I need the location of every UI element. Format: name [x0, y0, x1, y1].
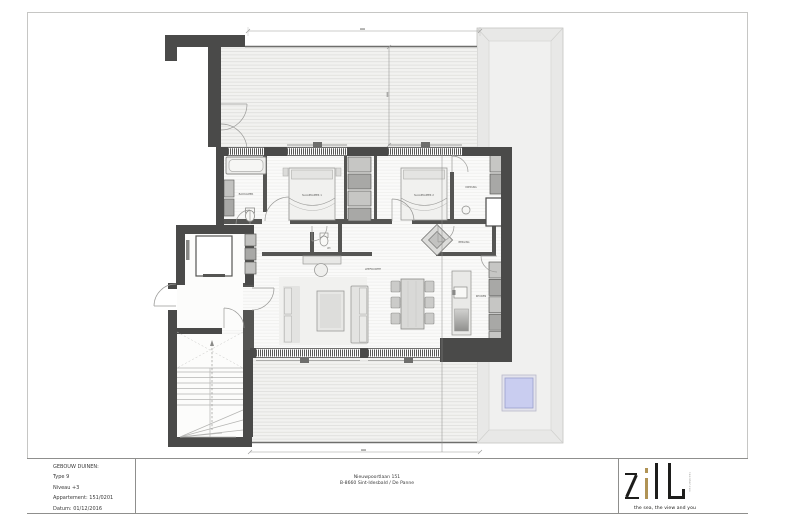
- logo-letter-i: [645, 478, 648, 499]
- wc-label: WC: [327, 247, 331, 250]
- skylight: [502, 375, 536, 411]
- title-block: GEBOUW DUINEN: Type 9 Niveau +3 Appartem…: [27, 458, 748, 514]
- upper-terrace: [221, 46, 477, 147]
- title-block-logo: residences the sea, the view and you: [618, 459, 748, 513]
- bedroom-1: SLAAPKAMER 1: [283, 168, 341, 220]
- bathroom-label: BADKAMER: [239, 192, 254, 196]
- round-table: [315, 264, 328, 277]
- circulation-core: [168, 225, 256, 447]
- bedroom-2: SLAAPKAMER 2: [401, 168, 447, 220]
- address-city: B-8660 Sint-Idesbald / De Panne: [136, 481, 618, 487]
- bedroom2-label: SLAAPKAMER 2: [414, 193, 434, 197]
- zilt-logo: residences the sea, the view and you: [619, 459, 749, 515]
- vanity-cabinet: [224, 180, 234, 197]
- logo-letter-l: [655, 463, 658, 499]
- bedroom1-label: SLAAPKAMER 1: [302, 193, 322, 197]
- dining-set: [391, 279, 434, 329]
- title-block-project-info: GEBOUW DUINEN: Type 9 Niveau +3 Appartem…: [27, 459, 136, 513]
- kitchen-label: KEUKEN: [476, 294, 487, 298]
- title-block-address: Nieuwpoortlaan 151 B-8660 Sint-Idesbald …: [136, 459, 618, 513]
- logo-letter-z: [625, 473, 639, 499]
- apartment-number: Appartement: 151/0201: [53, 493, 135, 503]
- logo-letter-t-end: [682, 489, 685, 499]
- living-room: LEEFRUIMTE: [279, 267, 381, 345]
- sink: [454, 287, 467, 298]
- living-label: LEEFRUIMTE: [365, 267, 382, 271]
- sofa-left: [283, 286, 300, 343]
- logo-tagline: the sea, the view and you: [623, 506, 707, 511]
- south-windows: [256, 349, 440, 363]
- floor-plan: BADKAMER SLAAPKAMER 1 SLAAPKAMER 2: [0, 0, 800, 525]
- sofa-right: [351, 286, 368, 343]
- logo-sub-text: residences: [688, 472, 692, 500]
- drawing-sheet: BADKAMER SLAAPKAMER 1 SLAAPKAMER 2: [0, 0, 800, 525]
- drawing-date: Datum: 01/12/2016: [53, 504, 135, 514]
- storage-label: BERGING: [458, 241, 469, 244]
- level: Niveau +3: [53, 483, 135, 493]
- project-name: GEBOUW DUINEN:: [53, 462, 135, 472]
- wardrobe-column: [348, 157, 371, 221]
- dressing-label: DRESSING: [465, 186, 477, 189]
- dining-table: [401, 279, 424, 329]
- lower-terrace: [250, 358, 477, 443]
- apartment-type: Type 9: [53, 472, 135, 482]
- logo-letter-t: [668, 463, 671, 499]
- logo-letter-i-dot: [645, 468, 648, 473]
- shaft-blocks: [245, 234, 256, 274]
- coffee-table: [317, 291, 344, 331]
- washbasin: [462, 206, 470, 214]
- storage-room: BERGING: [458, 241, 469, 244]
